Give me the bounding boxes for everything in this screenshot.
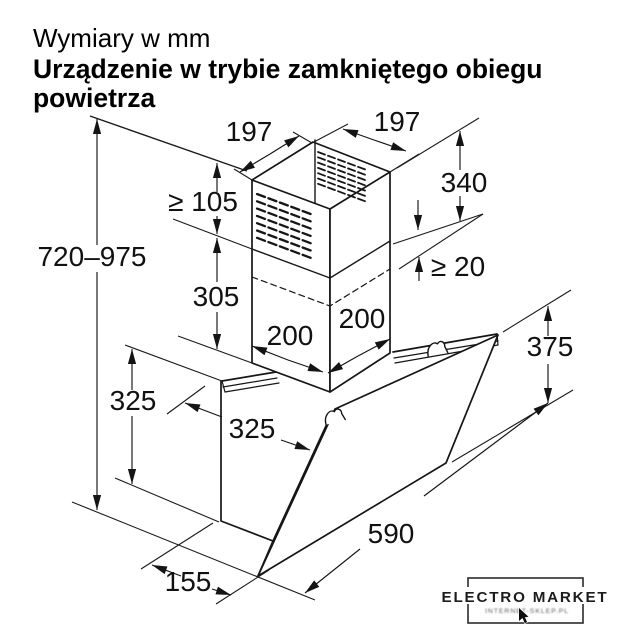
title-units: Wymiary w mm [33, 23, 210, 53]
title-block: Wymiary w mm Urządzenie w trybie zamknię… [33, 23, 543, 113]
dim-200-left: 200 [267, 320, 314, 351]
dim-min-105: ≥ 105 [168, 186, 238, 217]
dim-197-left: 197 [226, 116, 273, 147]
dim-720-975: 720–975 [37, 241, 146, 272]
dim-325-slant: 325 [229, 413, 276, 444]
dim-590: 590 [368, 518, 415, 549]
wall-reference-line [90, 116, 247, 171]
dim-min-20: ≥ 20 [431, 251, 485, 282]
dim-200-right: 200 [339, 303, 386, 334]
watermark-logo: ELECTRO MARKET INTERNET-SKLEP.PL [442, 578, 609, 623]
dim-325-back: 325 [110, 385, 157, 416]
logo-brand-text: ELECTRO MARKET [442, 589, 609, 606]
dim-340: 340 [441, 167, 488, 198]
dim-375: 375 [527, 331, 574, 362]
title-mode-line1: Urządzenie w trybie zamkniętego obiegu [33, 54, 543, 84]
chimney-right-face [330, 172, 390, 392]
hood-dimension-drawing: Wymiary w mm Urządzenie w trybie zamknię… [0, 0, 640, 640]
dimension-diagram-page: Wymiary w mm Urządzenie w trybie zamknię… [0, 0, 640, 640]
dim-155: 155 [165, 566, 212, 597]
dim-197-right: 197 [374, 106, 421, 137]
title-mode-line2: powietrza [33, 83, 155, 113]
logo-subtitle-text: INTERNET-SKLEP.PL [485, 608, 569, 615]
dim-305: 305 [193, 281, 240, 312]
